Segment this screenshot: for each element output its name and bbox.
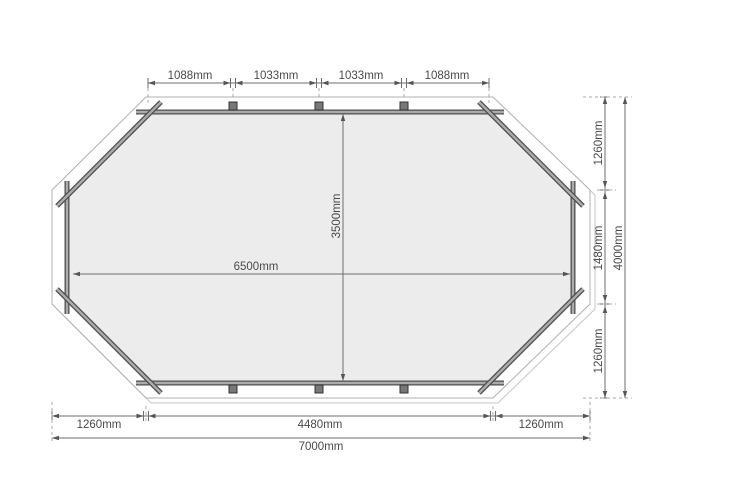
dim-label-right-total: 4000mm — [613, 226, 625, 271]
post — [400, 385, 408, 393]
dim-label-right-1: 1260mm — [593, 121, 605, 166]
post — [315, 102, 323, 110]
dim-label-right-2: 1480mm — [593, 226, 605, 271]
dim-label-top-3: 1033mm — [339, 70, 384, 82]
dim-label-right-3: 1260mm — [593, 329, 605, 374]
dim-label-interior-width: 6500mm — [234, 261, 279, 273]
floor-plan-drawing: 1088mm 1033mm 1033mm 1088mm 6500mm 3500m… — [0, 0, 750, 489]
dim-label-top-2: 1033mm — [254, 70, 299, 82]
dim-label-bottom-total: 7000mm — [299, 441, 344, 453]
dim-label-bottom-3: 1260mm — [519, 419, 564, 431]
post — [229, 385, 237, 393]
interior-floor — [67, 112, 573, 383]
dim-label-bottom-1: 1260mm — [77, 419, 122, 431]
dim-label-top-4: 1088mm — [425, 70, 470, 82]
post — [229, 102, 237, 110]
dim-label-bottom-2: 4480mm — [298, 419, 343, 431]
floor-plan-page: 1088mm 1033mm 1033mm 1088mm 6500mm 3500m… — [0, 0, 750, 489]
dim-label-interior-height: 3500mm — [331, 194, 343, 239]
dim-label-top-1: 1088mm — [168, 70, 213, 82]
post — [400, 102, 408, 110]
post — [315, 385, 323, 393]
